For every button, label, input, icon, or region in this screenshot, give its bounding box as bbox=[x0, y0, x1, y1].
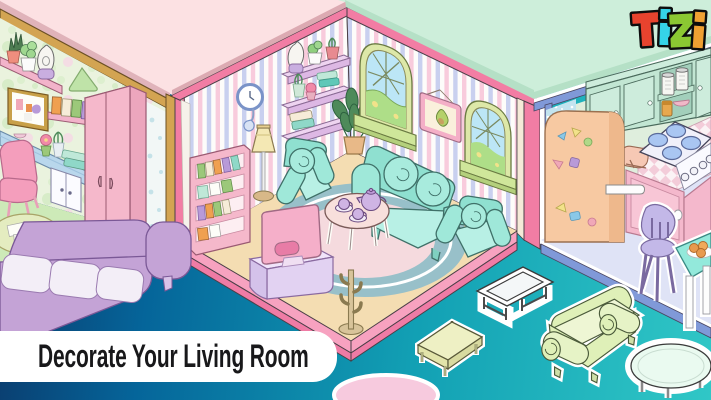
svg-text:Decorate Your Living Room: Decorate Your Living Room bbox=[38, 339, 309, 374]
